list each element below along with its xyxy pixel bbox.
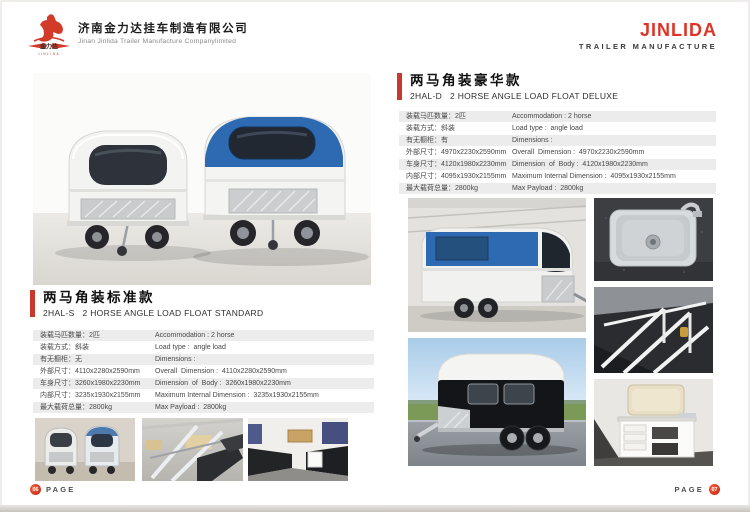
photo-sink-detail [594,198,713,281]
brand-subtitle: TRAILER MANUFACTURE [579,42,717,51]
spec-row: 外部尺寸：4110x2280x2590mmOverall Dimension :… [33,366,374,377]
catalog-page: 金力达 JINLIDA 济南金力达挂车制造有限公司 Jinan Jinlida … [0,0,750,512]
jinlida-horse-logo-icon: 金力达 JINLIDA [26,12,72,60]
brand-name: JINLIDA [579,20,717,41]
page-label: PAGE [46,485,76,494]
photo-deluxe-trailer-warehouse [408,198,586,332]
spec-row: 有无橱柜：有Dimensions : [399,135,716,146]
spec-row: 最大载荷总量：2800kgMax Payload : 2800kg [33,402,374,413]
page-number-badge: 06 [30,484,41,495]
spec-row: 装载方式：斜装Load type : angle load [33,342,374,353]
spec-row: 车身尺寸：4120x1980x2230mmDimension of Body :… [399,159,716,170]
photo-interior-railing-deluxe [594,287,713,373]
footer-right: PAGE 07 [675,484,721,495]
svg-text:JINLIDA: JINLIDA [38,52,60,56]
photo-trailers-rear-workshop [35,418,135,481]
photo-interior-frame-standard [142,418,243,481]
right-title-cn: 两马角装豪华款 [410,73,618,88]
title-accent-bar [30,290,35,317]
footer-left: 06 PAGE [30,484,76,495]
brand-block: JINLIDA TRAILER MANUFACTURE [579,20,717,51]
spec-row: 内部尺寸：4095x1930x2155mmMaximum Internal Di… [399,171,716,182]
photo-interior-padding-standard [248,418,348,481]
left-spec-table: 装载马匹数量：2匹Accommodation : 2 horse 装载方式：斜装… [33,330,374,414]
spec-row: 最大载荷总量：2800kgMax Payload : 2800kg [399,183,716,194]
spec-row: 有无橱柜：无Dimensions : [33,354,374,365]
company-name-block: 济南金力达挂车制造有限公司 Jinan Jinlida Trailer Manu… [78,20,248,45]
spec-row: 装载方式：斜装Load type : angle load [399,123,716,134]
photo-deluxe-trailer-outdoor [408,338,586,466]
page-label: PAGE [675,485,705,494]
company-name-cn: 济南金力达挂车制造有限公司 [78,20,248,36]
page-bottom-edge [0,505,750,512]
right-spec-table: 装载马匹数量：2匹Accommodation : 2 horse 装载方式：斜装… [399,111,716,195]
title-accent-bar [397,73,402,100]
left-section-title: 两马角装标准款 2HAL-S 2 HORSE ANGLE LOAD FLOAT … [30,290,263,318]
spec-row: 外部尺寸：4970x2230x2590mmOverall Dimension :… [399,147,716,158]
left-title-en: 2HAL-S 2 HORSE ANGLE LOAD FLOAT STANDARD [43,308,263,318]
svg-text:金力达: 金力达 [39,43,58,51]
spec-row: 装载马匹数量：2匹Accommodation : 2 horse [399,111,716,122]
spec-row: 装载马匹数量：2匹Accommodation : 2 horse [33,330,374,341]
spec-row: 车身尺寸：3260x1980x2230mmDimension of Body :… [33,378,374,389]
page-number-badge: 07 [709,484,720,495]
photo-cabinet-kitchenette-deluxe [594,379,713,466]
company-name-en: Jinan Jinlida Trailer Manufacture Compan… [78,38,248,45]
right-title-en: 2HAL-D 2 HORSE ANGLE LOAD FLOAT DELUXE [410,91,618,101]
left-title-cn: 两马角装标准款 [43,290,263,305]
right-section-title: 两马角装豪华款 2HAL-D 2 HORSE ANGLE LOAD FLOAT … [397,73,618,101]
spec-row: 内部尺寸：3235x1930x2155mmMaximum Internal Di… [33,390,374,401]
photo-standard-trailers-front-view [33,73,371,285]
